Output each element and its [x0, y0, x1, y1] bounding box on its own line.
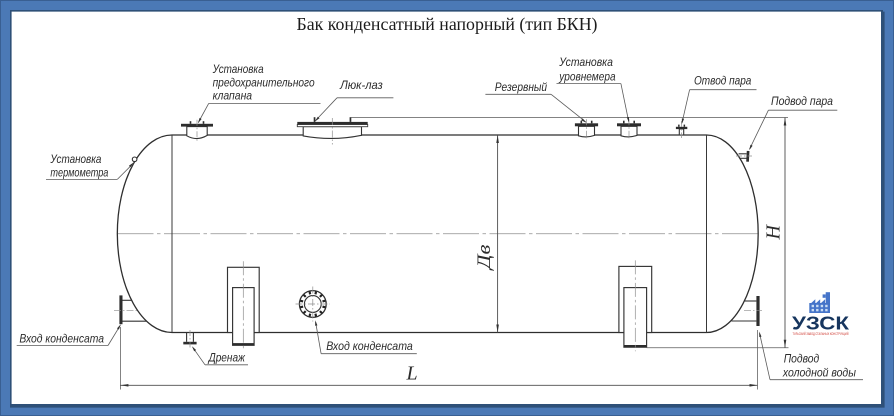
svg-text:H: H	[763, 224, 785, 241]
svg-text:Отвод пара: Отвод пара	[694, 73, 752, 87]
svg-text:уровнемера: уровнемера	[558, 70, 616, 84]
svg-text:Вход конденсата: Вход конденсата	[19, 332, 104, 346]
svg-text:ТУЛЬСКИЙ ЗАВОД СТАЛЬНЫХ КОНСТР: ТУЛЬСКИЙ ЗАВОД СТАЛЬНЫХ КОНСТРУКЦИЙ	[793, 332, 849, 336]
svg-text:L: L	[405, 363, 417, 385]
svg-text:клапана: клапана	[213, 89, 253, 103]
svg-text:Вход конденсата: Вход конденсата	[326, 339, 413, 353]
svg-text:Люк-лаз: Люк-лаз	[339, 78, 383, 92]
svg-text:Установка: Установка	[50, 152, 102, 166]
svg-text:Бак конденсатный напорный (тип: Бак конденсатный напорный (тип БКН)	[297, 14, 598, 35]
svg-text:Установка: Установка	[558, 55, 613, 69]
svg-text:Дренаж: Дренаж	[207, 351, 246, 365]
svg-text:Установка: Установка	[212, 62, 264, 76]
svg-text:холодной воды: холодной воды	[782, 366, 856, 380]
svg-text:Резервный: Резервный	[495, 80, 548, 94]
svg-text:предохранительного: предохранительного	[213, 76, 315, 90]
svg-text:Подвод: Подвод	[784, 351, 820, 365]
svg-text:УЗСК: УЗСК	[792, 313, 850, 334]
svg-text:термометра: термометра	[50, 165, 108, 179]
svg-text:Подвод пара: Подвод пара	[771, 94, 833, 108]
svg-text:Дв: Дв	[474, 245, 495, 272]
